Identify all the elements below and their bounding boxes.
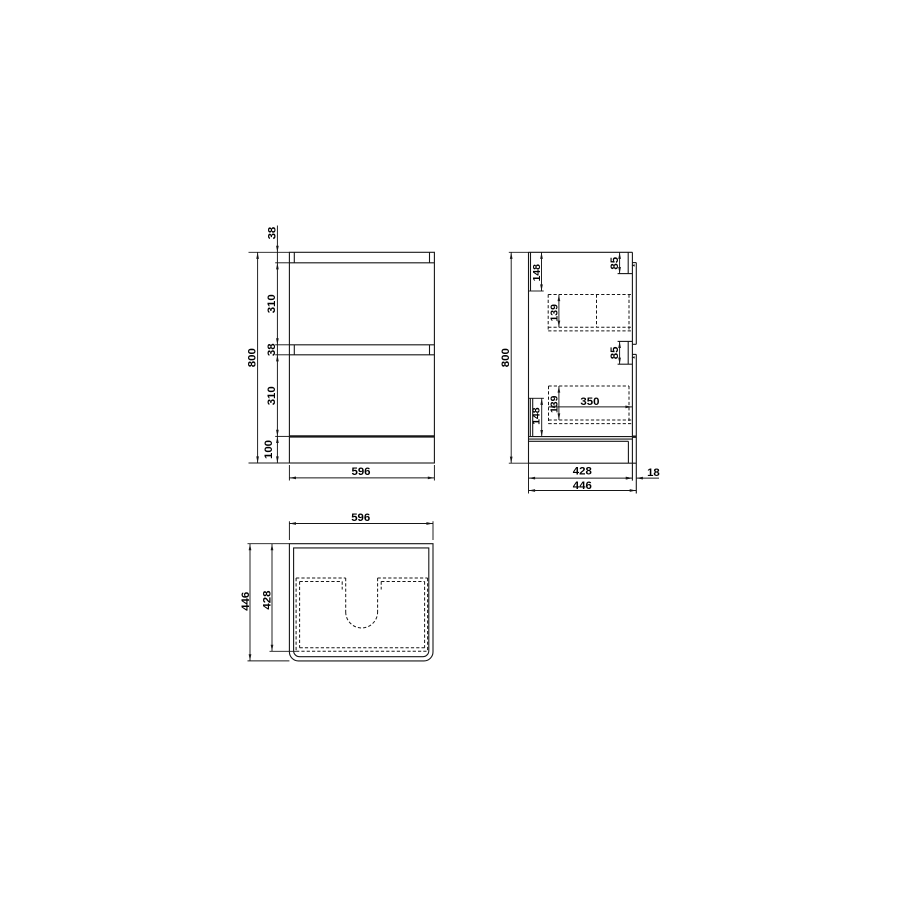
svg-text:148: 148 [532, 264, 543, 282]
svg-text:18: 18 [647, 467, 660, 479]
svg-text:100: 100 [263, 440, 275, 459]
svg-text:596: 596 [351, 512, 370, 524]
svg-text:38: 38 [266, 343, 278, 356]
svg-text:350: 350 [580, 396, 599, 408]
svg-text:596: 596 [351, 466, 370, 478]
svg-text:310: 310 [266, 294, 278, 313]
svg-text:139: 139 [550, 304, 561, 322]
svg-text:800: 800 [247, 348, 259, 367]
svg-text:310: 310 [266, 386, 278, 405]
svg-text:446: 446 [240, 592, 252, 611]
svg-text:38: 38 [266, 227, 278, 240]
svg-text:446: 446 [573, 480, 592, 492]
svg-text:428: 428 [573, 466, 592, 478]
svg-text:139: 139 [550, 395, 561, 413]
svg-text:148: 148 [532, 407, 543, 425]
svg-text:85: 85 [609, 346, 621, 359]
svg-text:800: 800 [500, 348, 512, 367]
svg-text:85: 85 [609, 256, 621, 269]
svg-text:428: 428 [262, 591, 274, 610]
